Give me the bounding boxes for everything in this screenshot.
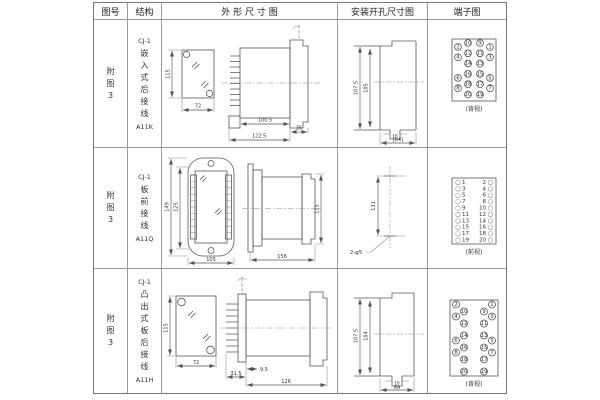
terminal-pins: 12 34 56 78 910 1112 1314 1516 1718 1920 [455,180,492,244]
mounting-cell-row2: 131 2-φ5 [338,148,428,269]
view-caption: (背视) [465,380,482,388]
figure-number: 附图3 [105,190,116,226]
pin-number: 12 [479,212,486,218]
structure-cell-row2: CJ-1 板前接线 A11Q [128,148,162,269]
structure-cell-row3: CJ-1 凸出式板后接线 A11H [128,269,162,393]
structure-cell-row1: CJ-1 嵌入式后接线 A11K [128,20,162,148]
header-structure: 结构 [128,3,162,20]
terminal-diagram-a11q: 12 34 56 78 910 1112 1314 1516 1718 1920… [429,148,506,268]
front-view: 149 125 105 [165,158,235,265]
pin-number: 16 [464,71,471,77]
pin-number: 13 [462,218,469,224]
pin-number: 15 [476,71,483,77]
pin-number: 5 [462,193,466,199]
front-view: 115 72 [164,296,217,368]
dim-fins: 31.5 [230,371,241,377]
pin-number: 18 [464,82,471,88]
pin-number: 10 [460,308,467,314]
dim-front-width: 72 [193,360,199,366]
header-figure-label: 图号 [101,5,119,18]
pin-number: 6 [456,75,460,81]
pin-number: 13 [476,61,483,67]
structure-name: 凸出式板后接线 [139,289,150,373]
outline-drawing-a11q: 149 125 105 156 115 [162,148,337,268]
drawing-table: 图号 结构 外 形 尺 寸 图 安装开孔尺寸图 端子图 附图3 CJ-1 嵌入式… [93,2,507,394]
terminal-diagram-a11h: 2 10 9 1 4 12 11 3 14 13 6 16 15 5 8 18 … [429,270,506,393]
pin-number: 2 [454,301,458,307]
pin-number: 18 [460,356,467,362]
pin-number: 3 [462,186,466,192]
dim-flange: 35 [296,126,302,132]
view-caption: (背视) [465,105,482,113]
terminal-cell-row2: 12 34 56 78 910 1112 1314 1516 1718 1920… [428,148,506,269]
terminal-cell-row1: 2 10 9 1 4 12 11 3 14 13 6 16 15 5 8 18 … [428,20,506,148]
dim-hole-distance: 131 [371,201,377,211]
pin-number: 9 [482,308,486,314]
dim-front-height: 115 [166,69,172,79]
outline-cell-row2: 149 125 105 156 115 [162,148,338,269]
pin-number: 20 [464,92,471,98]
header-mounting-label: 安装开孔尺寸图 [351,5,414,18]
mounting-drawing-a11q: 131 2-φ5 [338,148,427,268]
terminal-diagram-a11k: 2 10 9 1 4 12 11 3 14 13 6 16 15 5 8 18 … [429,20,506,147]
outline-cell-row1: 115 72 100.5 35 122.5 [162,20,338,148]
pin-number: 9 [462,206,466,212]
dim-total-length: 122.5 [252,134,266,140]
pin-number: 20 [479,238,486,244]
dim-inner-height: 105 [364,83,370,93]
pin-number: 10 [464,40,471,46]
pin-number: 9 [478,40,482,46]
terminal-strip-left [191,181,197,232]
pin-number: 1 [488,44,492,50]
pin-number: 8 [482,199,486,205]
figure-number: 附图3 [105,66,116,102]
pin-number: 19 [476,92,483,98]
outline-drawing-a11k: 115 72 100.5 35 122.5 [162,20,337,147]
figure-cell-row3: 附图3 [94,269,128,393]
pin-number: 16 [460,344,467,350]
pin-number: 14 [479,218,486,224]
pin-number: 15 [462,225,469,231]
pin-number: 11 [480,320,487,326]
mounting-drawing-a11h: 107.5 104 16 64 [338,270,427,393]
pin-number: 12 [460,320,467,326]
leader-line [366,236,390,252]
dim-front-height: 115 [164,323,170,333]
pin-number: 7 [488,86,492,92]
dim-front-width: 105 [206,257,216,263]
pin-number: 11 [476,51,483,57]
pin-number: 11 [462,212,469,218]
dim-bottom-width: [64] [393,137,403,143]
header-mounting: 安装开孔尺寸图 [338,3,428,20]
pin-number: 14 [464,61,471,67]
header-outline-label: 外 形 尺 寸 图 [221,5,277,18]
pin-number: 17 [480,356,487,362]
terminal-cell-row3: 2 10 9 1 4 12 11 3 14 13 6 16 15 5 8 18 … [428,269,506,393]
dim-outer-height: 107.5 [354,328,360,342]
dim-front-width: 72 [195,104,201,110]
pin-number: 6 [454,337,458,343]
pin-number: 10 [479,206,486,212]
pin-number: 19 [480,368,487,374]
outline-drawing-a11h: 115 72 9.5 31.5 126 [162,270,337,393]
structure-code: A11H [136,376,154,384]
pin-number: 2 [456,44,460,50]
pin-number: 1 [490,301,494,307]
mounting-cell-row1: 107.5 105 16 [64] [338,20,428,148]
pin-number: 14 [460,332,467,338]
front-view: 115 72 [166,50,215,112]
pin-number: 18 [479,231,486,237]
pin-number: 1 [462,180,466,186]
pin-number: 8 [456,86,460,92]
pin-number: 20 [460,368,467,374]
terminal-fins [230,56,240,106]
header-terminal: 端子图 [428,3,506,20]
pin-number: 3 [490,313,494,319]
structure-code: A11K [136,123,153,131]
structure-name: 嵌入式后接线 [139,48,150,120]
view-caption: (前视) [465,248,482,256]
glass-hatch [188,311,211,341]
side-view: 9.5 31.5 126 [220,277,334,386]
pin-number: 8 [454,349,458,355]
dim-bottom-width: 64 [394,385,400,391]
pin-number: 19 [462,238,469,244]
pin-number: 12 [464,51,471,57]
pin-number: 16 [479,225,486,231]
header-outline: 外 形 尺 寸 图 [162,3,338,20]
side-view: 156 115 [242,164,324,262]
dim-front-outer-height: 149 [165,202,171,212]
glass-hatch [200,176,222,216]
terminal-pins: 2 10 9 1 4 12 11 3 14 13 6 16 15 5 8 18 … [454,40,493,98]
pin-number: 6 [482,193,486,199]
pin-number: 17 [462,231,469,237]
structure-name: 板前接线 [139,184,150,232]
dim-front-inner-height: 125 [174,202,180,212]
terminal-pins: 2 10 9 1 4 12 11 3 14 13 6 16 15 5 8 18 … [452,301,495,375]
pin-number: 4 [454,313,458,319]
pin-number: 3 [488,55,492,61]
outline-cell-row3: 115 72 9.5 31.5 126 [162,269,338,393]
dim-side-height: 115 [315,204,321,214]
header-figure: 图号 [94,3,128,20]
glass-hatch [192,62,209,88]
pin-number: 4 [482,186,486,192]
figure-cell-row2: 附图3 [94,148,128,269]
dim-outer-height: 107.5 [354,81,360,95]
model-label: CJ-1 [138,173,151,181]
model-label: CJ-1 [138,37,151,45]
pin-number: 4 [456,55,460,61]
pin-number: 5 [488,75,492,81]
end-cap [302,174,315,244]
dim-body-length: 126 [281,379,291,385]
pin-number: 13 [480,332,487,338]
flange [310,292,327,366]
mounting-drawing-a11k: 107.5 105 16 [64] [338,20,427,147]
pin-number: 15 [480,344,487,350]
dim-side-length: 156 [277,254,287,260]
header-terminal-label: 端子图 [453,5,480,18]
pin-number: 5 [490,337,494,343]
dim-inner-height: 104 [364,331,370,341]
pin-number: 7 [490,349,494,355]
side-view: 100.5 35 122.5 [222,25,320,142]
mounting-cell-row3: 107.5 104 16 64 [338,269,428,393]
figure-cell-row1: 附图3 [94,20,128,148]
pin-number: 7 [462,199,466,205]
figure-number: 附图3 [105,313,116,349]
terminal-strip-right [226,181,232,232]
hole-spec-label: 2-φ5 [350,250,363,256]
structure-code: A11Q [136,235,154,243]
header-structure-label: 结构 [135,5,153,18]
pin-number: 2 [482,180,486,186]
model-label: CJ-1 [138,278,151,286]
dim-body-length: 100.5 [258,118,272,124]
flange [290,40,308,128]
dim-offset: 9.5 [260,367,268,373]
pin-number: 17 [476,82,483,88]
